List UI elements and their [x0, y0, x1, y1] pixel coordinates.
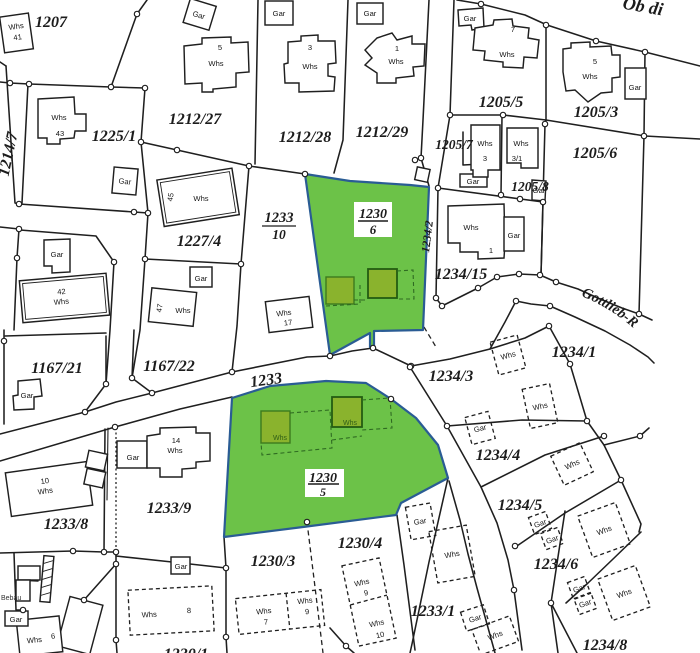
svg-text:Whs: Whs — [463, 223, 478, 232]
svg-text:10: 10 — [40, 476, 50, 486]
svg-text:14: 14 — [172, 436, 180, 445]
svg-text:1212/28: 1212/28 — [279, 129, 331, 146]
svg-text:1234/1: 1234/1 — [552, 344, 596, 361]
svg-text:6: 6 — [370, 222, 377, 237]
svg-text:1230: 1230 — [359, 207, 387, 222]
svg-text:1233/1: 1233/1 — [411, 603, 455, 620]
svg-text:1234/4: 1234/4 — [476, 447, 520, 464]
svg-text:1205/3: 1205/3 — [574, 104, 618, 121]
svg-text:Whs: Whs — [141, 610, 157, 620]
svg-text:1167/21: 1167/21 — [31, 360, 83, 377]
svg-text:1212/27: 1212/27 — [169, 111, 222, 128]
svg-text:Whs: Whs — [297, 596, 313, 607]
svg-text:Whs: Whs — [302, 62, 317, 71]
svg-text:Gar: Gar — [508, 231, 521, 240]
svg-text:1212/29: 1212/29 — [356, 124, 408, 141]
svg-text:Gar: Gar — [629, 83, 642, 92]
svg-text:1207: 1207 — [35, 14, 68, 31]
svg-text:Gar: Gar — [175, 562, 188, 571]
svg-text:1: 1 — [489, 246, 493, 255]
svg-text:Whs: Whs — [499, 50, 514, 59]
svg-text:1233/9: 1233/9 — [147, 500, 191, 517]
svg-text:3: 3 — [483, 154, 487, 163]
svg-text:1234/5: 1234/5 — [498, 497, 542, 514]
svg-text:1234/15: 1234/15 — [435, 266, 487, 283]
svg-text:5: 5 — [593, 57, 597, 66]
svg-text:1: 1 — [395, 44, 399, 53]
svg-text:17: 17 — [283, 318, 292, 328]
svg-text:1233/8: 1233/8 — [44, 516, 88, 533]
svg-text:Whs: Whs — [193, 194, 208, 203]
svg-text:Gar: Gar — [464, 14, 477, 23]
svg-text:Whs: Whs — [256, 606, 272, 617]
svg-text:1167/22: 1167/22 — [143, 358, 195, 375]
svg-text:Gar: Gar — [364, 9, 377, 18]
svg-text:Whs: Whs — [167, 446, 182, 455]
svg-text:1205/6: 1205/6 — [573, 145, 617, 162]
svg-text:1205/7: 1205/7 — [435, 137, 474, 152]
svg-text:1230/4: 1230/4 — [338, 535, 382, 552]
svg-text:10: 10 — [272, 227, 286, 242]
svg-text:Whs: Whs — [343, 420, 358, 427]
svg-text:5: 5 — [320, 485, 326, 499]
svg-text:47: 47 — [154, 303, 164, 313]
svg-text:Whs: Whs — [273, 435, 288, 442]
svg-text:1233: 1233 — [265, 210, 294, 226]
svg-text:Gar: Gar — [533, 186, 546, 195]
svg-text:1205/5: 1205/5 — [479, 94, 523, 111]
svg-text:Bebau: Bebau — [1, 595, 21, 602]
svg-text:8: 8 — [187, 606, 192, 615]
svg-text:Whs: Whs — [208, 59, 223, 68]
svg-text:7: 7 — [511, 25, 515, 34]
svg-text:Gar: Gar — [10, 615, 23, 624]
svg-text:Whs: Whs — [26, 635, 42, 646]
svg-text:1234/8: 1234/8 — [583, 637, 627, 653]
svg-text:Whs: Whs — [53, 297, 69, 307]
svg-text:Whs: Whs — [175, 306, 190, 315]
svg-text:5: 5 — [218, 43, 222, 52]
svg-text:Gar: Gar — [195, 274, 208, 283]
svg-text:Whs: Whs — [388, 57, 403, 66]
svg-text:Gar: Gar — [273, 9, 286, 18]
svg-text:42: 42 — [57, 287, 66, 297]
svg-text:1230/3: 1230/3 — [251, 553, 295, 570]
svg-text:1234/3: 1234/3 — [429, 368, 473, 385]
svg-text:Gar: Gar — [21, 391, 34, 400]
svg-text:Whs: Whs — [51, 113, 66, 122]
svg-text:41: 41 — [13, 32, 23, 42]
svg-text:43: 43 — [56, 129, 64, 138]
svg-text:Whs: Whs — [276, 308, 292, 319]
svg-text:Gar: Gar — [127, 453, 140, 462]
svg-text:3: 3 — [308, 43, 312, 52]
svg-text:Gar: Gar — [118, 176, 132, 186]
svg-text:Gar: Gar — [51, 250, 64, 259]
svg-text:45: 45 — [165, 192, 175, 202]
svg-text:Whs: Whs — [477, 139, 492, 148]
svg-text:Gar: Gar — [467, 177, 480, 186]
svg-text:3/1: 3/1 — [512, 154, 523, 163]
svg-text:Whs: Whs — [513, 139, 528, 148]
svg-text:1234/6: 1234/6 — [534, 556, 578, 573]
svg-text:1225/1: 1225/1 — [92, 128, 136, 145]
svg-text:1230/1: 1230/1 — [164, 646, 208, 653]
svg-text:Whs: Whs — [582, 72, 597, 81]
svg-text:1227/4: 1227/4 — [177, 233, 221, 250]
